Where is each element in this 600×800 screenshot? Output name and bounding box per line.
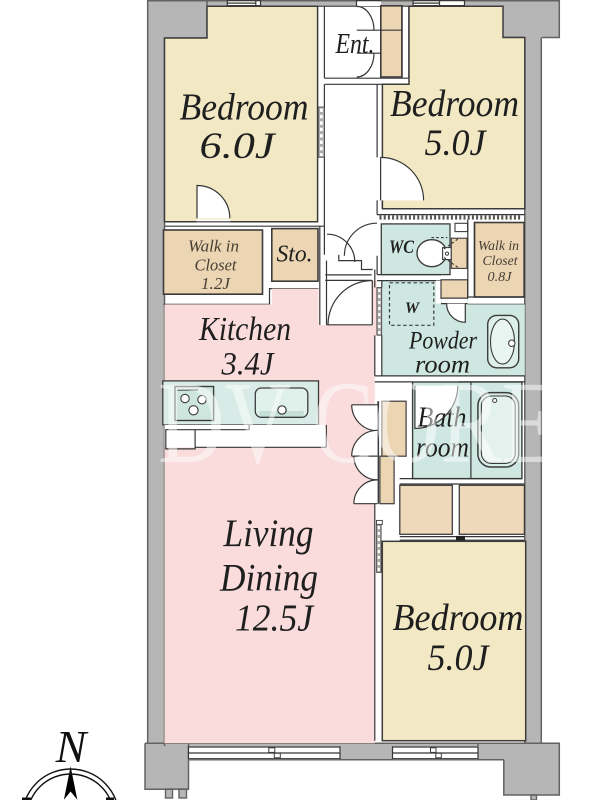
svg-text:Bedroom: Bedroom xyxy=(180,87,309,129)
svg-text:5.0J: 5.0J xyxy=(428,638,491,679)
svg-text:Bedroom: Bedroom xyxy=(393,597,524,639)
svg-text:Living: Living xyxy=(223,512,314,555)
svg-text:12.5J: 12.5J xyxy=(235,598,315,640)
svg-text:Kitchen: Kitchen xyxy=(198,311,291,348)
svg-text:1.2J: 1.2J xyxy=(201,274,231,293)
svg-text:N: N xyxy=(55,721,89,772)
svg-text:6.0J: 6.0J xyxy=(200,126,277,167)
svg-text:W: W xyxy=(405,300,421,317)
svg-text:0.8J: 0.8J xyxy=(488,270,513,285)
svg-text:Closet: Closet xyxy=(195,255,238,274)
svg-text:Dining: Dining xyxy=(219,557,318,600)
svg-text:DV CORE: DV CORE xyxy=(158,357,558,488)
svg-text:Sto.: Sto. xyxy=(277,242,313,268)
svg-text:Walk in: Walk in xyxy=(188,236,239,255)
svg-text:Walk in: Walk in xyxy=(478,239,519,254)
svg-text:Closet: Closet xyxy=(483,254,519,269)
svg-text:Bedroom: Bedroom xyxy=(390,83,519,125)
svg-text:5.0J: 5.0J xyxy=(425,123,488,164)
svg-text:Ent.: Ent. xyxy=(335,29,375,60)
svg-text:WC: WC xyxy=(389,237,414,258)
svg-text:Powder: Powder xyxy=(408,328,477,355)
